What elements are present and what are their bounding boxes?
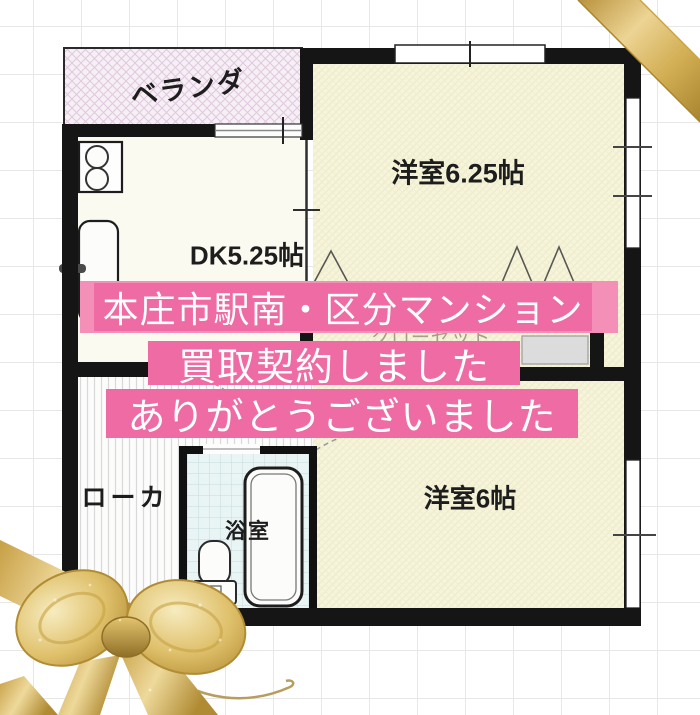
banner-line-2: 買取契約しました (148, 341, 520, 385)
toilet-icon (193, 541, 236, 604)
banner-line-3: ありがとうございました (106, 389, 578, 438)
room2-label: 洋室6帖 (424, 479, 516, 516)
banner-line-1: 本庄市駅南・区分マンション (94, 283, 592, 331)
corridor-label: ローカ (81, 478, 168, 514)
room1-label: 洋室6.25帖 (391, 152, 525, 191)
bathroom-label: 浴室 (225, 515, 271, 545)
dk-label: DK5.25帖 (190, 236, 304, 273)
window (626, 98, 640, 248)
closet-door (522, 336, 588, 364)
stove-icon (79, 142, 122, 192)
middle-wall (515, 367, 624, 381)
floorplan-photo: ベランダ 洋室6.25帖 DK5.25帖 クローゼット ローカ 浴室 洋室6帖 … (0, 0, 700, 715)
